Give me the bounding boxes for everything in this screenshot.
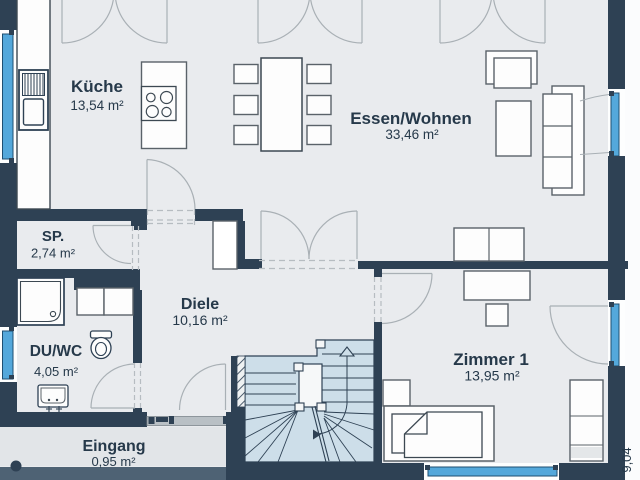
svg-text:10,16 m²: 10,16 m² bbox=[172, 312, 228, 328]
svg-text:9,04: 9,04 bbox=[619, 447, 634, 472]
svg-text:Zimmer 1: Zimmer 1 bbox=[453, 350, 529, 369]
svg-text:DU/WC: DU/WC bbox=[30, 343, 83, 360]
svg-text:Eingang: Eingang bbox=[82, 438, 145, 455]
svg-text:Diele: Diele bbox=[181, 296, 219, 313]
svg-text:Küche: Küche bbox=[71, 77, 123, 96]
svg-text:13,95 m²: 13,95 m² bbox=[464, 368, 520, 384]
svg-text:0,95 m²: 0,95 m² bbox=[91, 454, 136, 469]
svg-text:Essen/Wohnen: Essen/Wohnen bbox=[350, 109, 472, 128]
svg-text:13,54 m²: 13,54 m² bbox=[70, 98, 124, 113]
svg-text:SP.: SP. bbox=[42, 228, 64, 245]
svg-text:4,05 m²: 4,05 m² bbox=[34, 364, 79, 379]
svg-text:2,74 m²: 2,74 m² bbox=[31, 246, 76, 261]
svg-text:33,46 m²: 33,46 m² bbox=[385, 127, 439, 142]
